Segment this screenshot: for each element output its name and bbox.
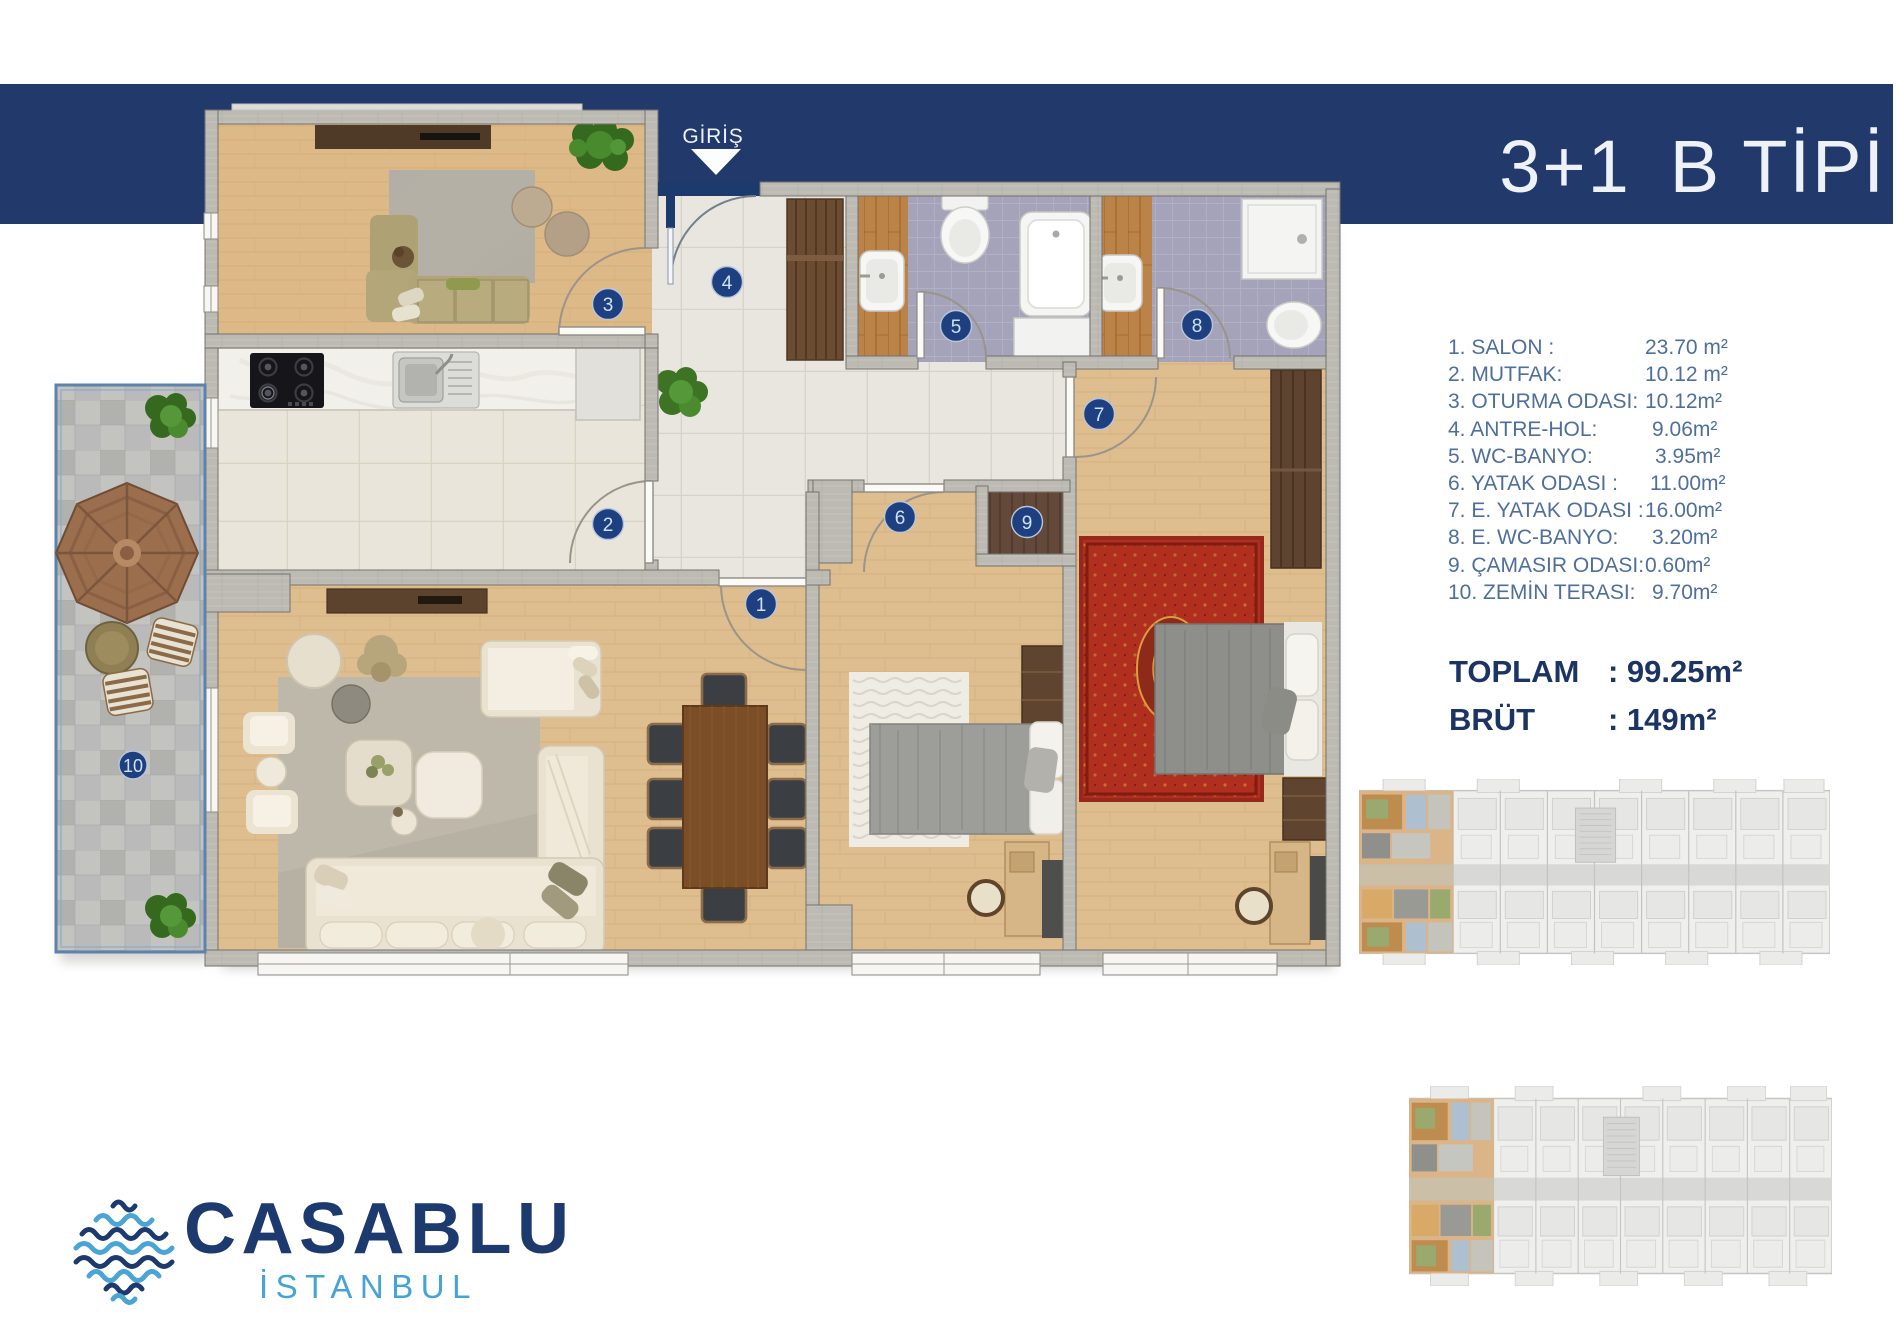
svg-text:1: 1 [756,595,767,616]
svg-text:2: 2 [603,515,614,536]
svg-text:8: 8 [1192,316,1203,337]
svg-text:6: 6 [895,508,906,529]
svg-text:10: 10 [123,756,143,776]
svg-text:7: 7 [1094,405,1105,426]
svg-text:GİRİŞ: GİRİŞ [682,125,743,148]
svg-text:9: 9 [1022,513,1033,534]
svg-text:3: 3 [603,295,614,316]
svg-text:5: 5 [951,317,962,338]
svg-text:4: 4 [722,273,733,294]
